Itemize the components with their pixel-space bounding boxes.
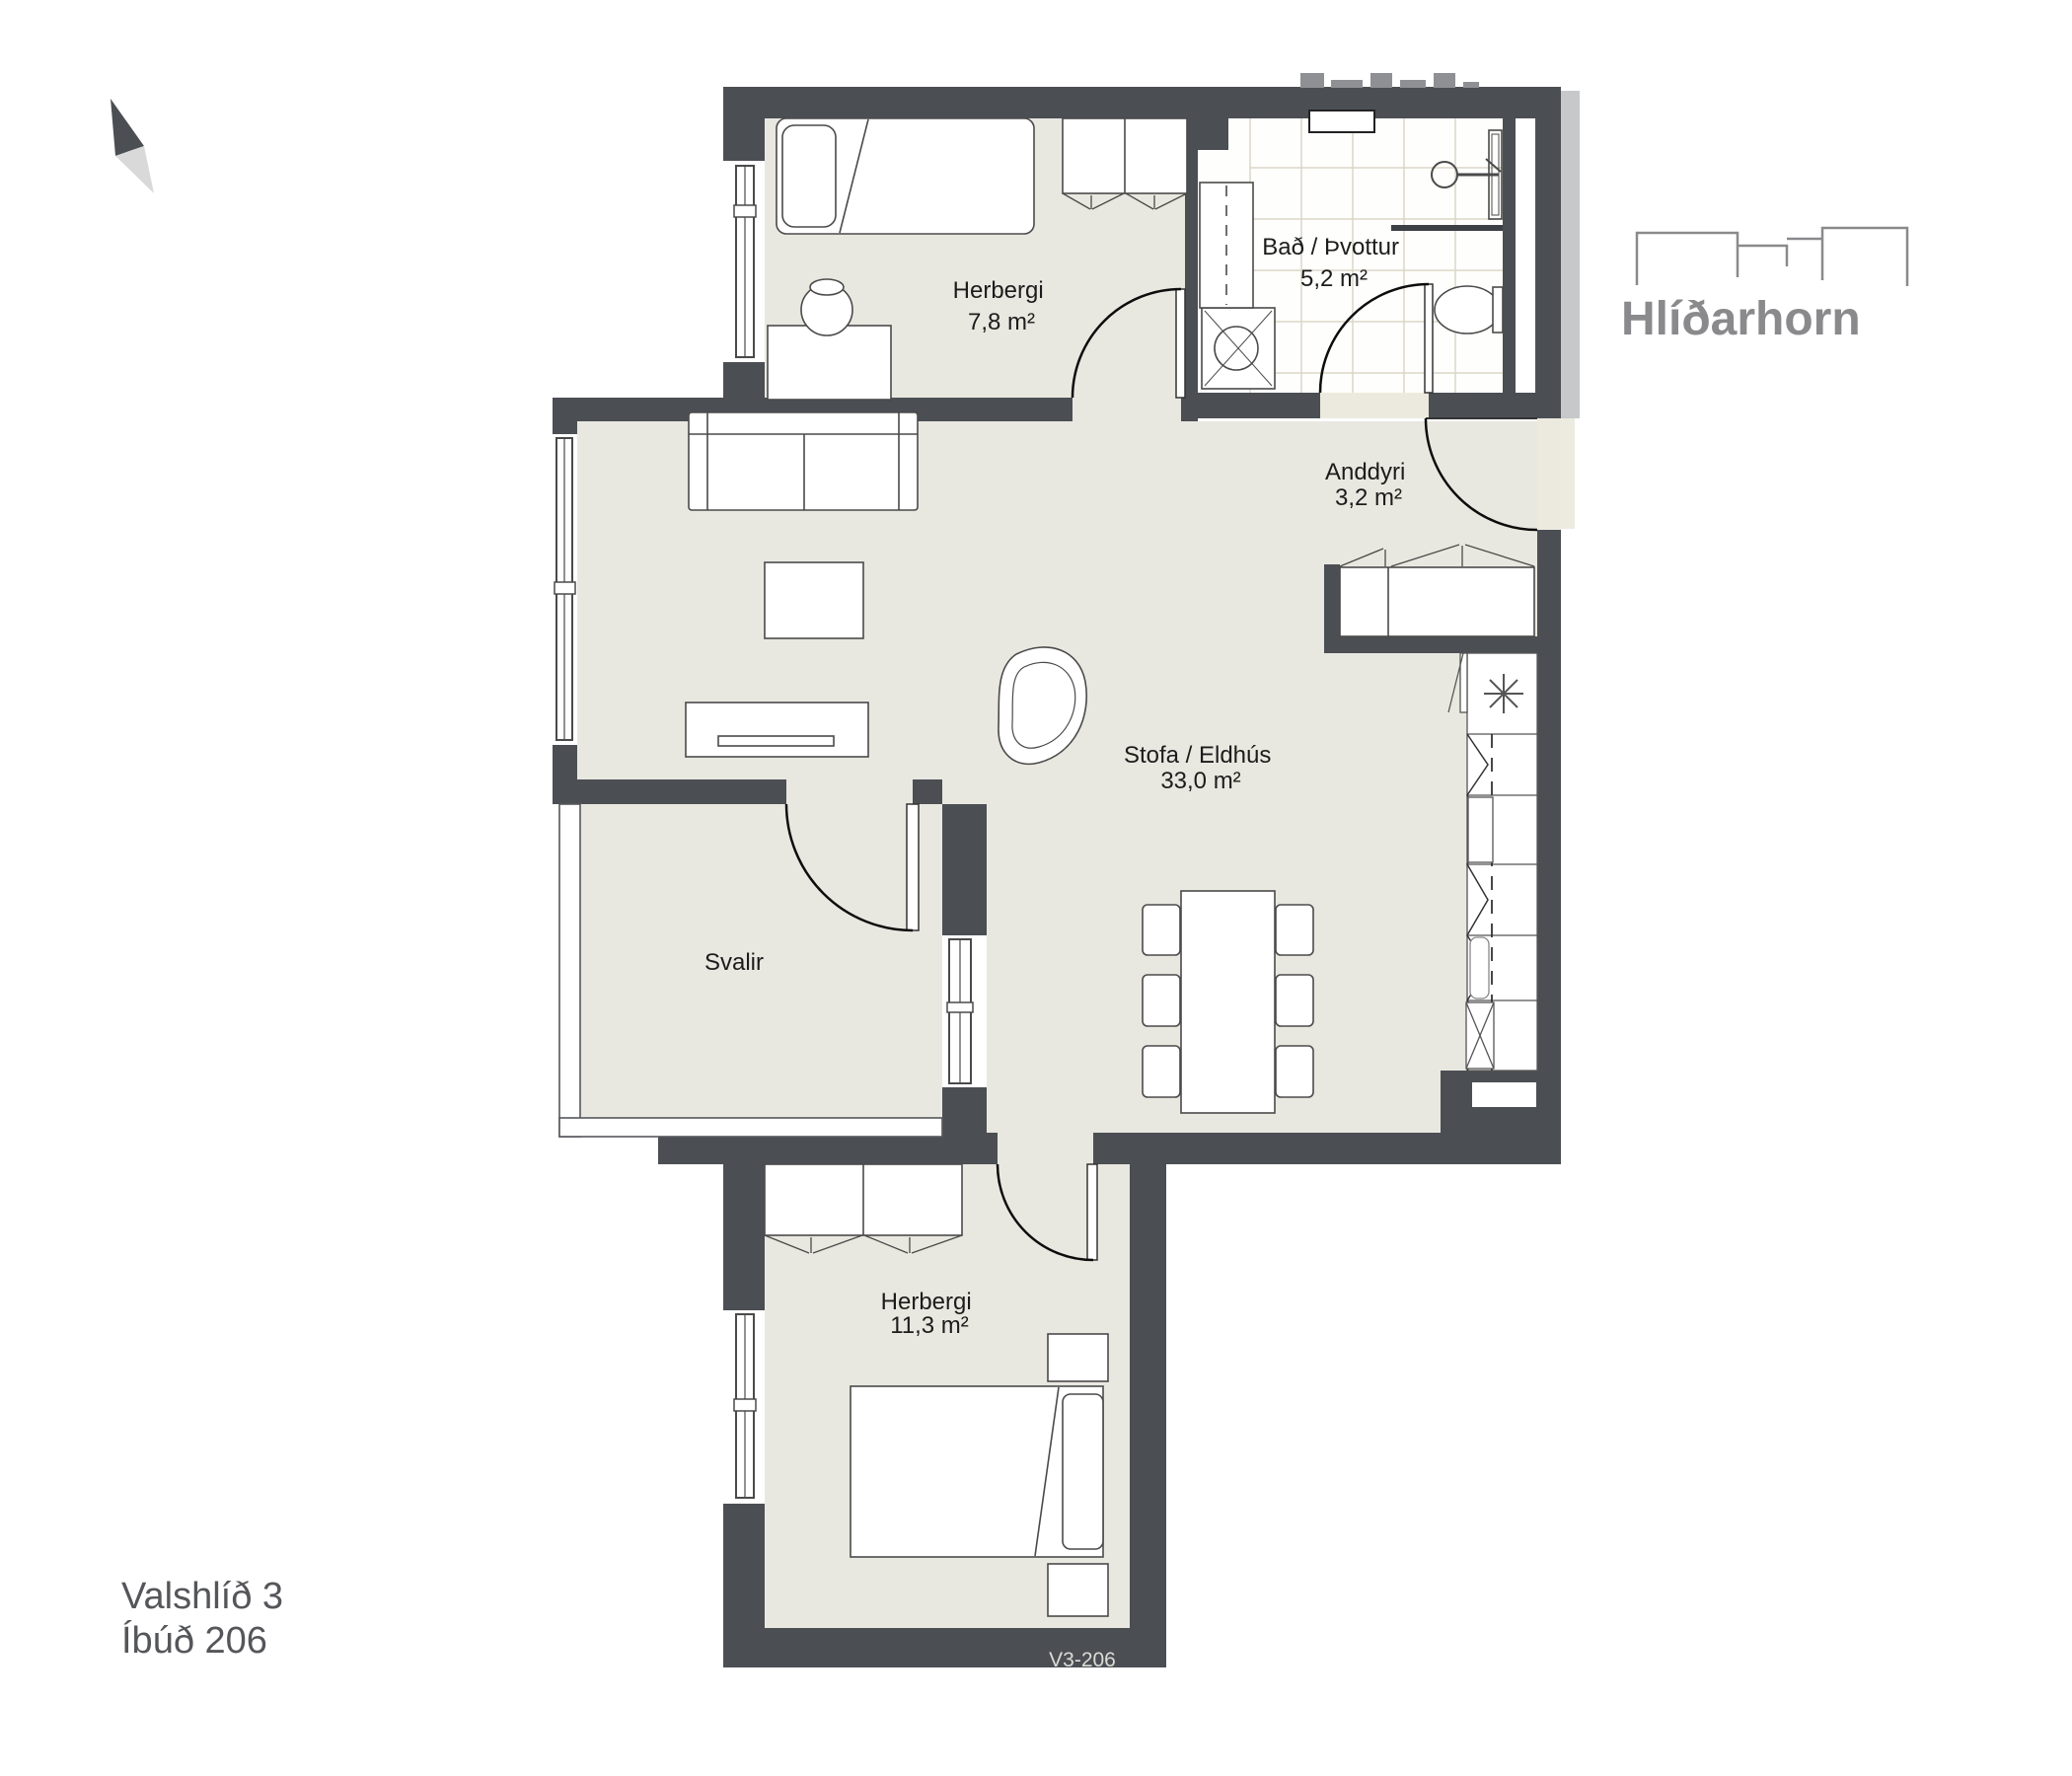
floor-plan-page: Herbergi 7,8 m² Bað / Þvottur 5,2 m² And… <box>0 0 2072 1776</box>
address-block: Valshlíð 3 Íbúð 206 <box>121 1575 283 1664</box>
toilet-tank <box>1493 287 1503 333</box>
logo-skyline-icon <box>1637 228 1907 286</box>
wall-top <box>723 87 1561 118</box>
sofa <box>689 412 918 510</box>
ghost-strip-right <box>1561 91 1580 418</box>
opening-entrance <box>1537 418 1561 530</box>
dining-chair <box>1276 975 1313 1026</box>
washing-machine <box>1202 308 1275 389</box>
stove-icon <box>1484 674 1523 713</box>
toilet <box>1435 286 1500 333</box>
wall-niche-block <box>1198 116 1228 150</box>
nightstand <box>1048 1334 1108 1381</box>
wall-inset-white <box>1472 1082 1536 1107</box>
shaft-white <box>1516 118 1535 393</box>
dining-chair <box>1143 975 1180 1026</box>
dining-table <box>1181 891 1275 1113</box>
opening-balcony <box>786 779 913 804</box>
address-street: Valshlíð 3 <box>121 1575 283 1619</box>
window-balcony-dining <box>942 935 987 1087</box>
address-apartment: Íbúð 206 <box>121 1619 283 1664</box>
plan-code: V3-206 <box>1049 1649 1116 1671</box>
wall-balcony-top-left <box>553 779 786 804</box>
fridge <box>1466 1002 1494 1069</box>
opening-bedroom1 <box>1073 398 1181 421</box>
opening-bedroom2 <box>998 1133 1093 1164</box>
logo-wordmark: Hlíðarhorn <box>1621 292 1861 346</box>
dining-chair <box>1276 1046 1313 1097</box>
utility-cabinet <box>1200 183 1253 308</box>
floor-plan-drawing: Herbergi 7,8 m² Bað / Þvottur 5,2 m² And… <box>0 0 2072 1776</box>
desk-chair-back <box>810 279 844 295</box>
window-bedroom-1 <box>723 161 765 362</box>
window-bedroom-2 <box>723 1310 765 1504</box>
label-svalir: Svalir <box>704 949 764 976</box>
wall-anddyri-band <box>1324 636 1561 653</box>
coffee-table <box>765 562 863 638</box>
wall-bedroom2-right <box>1130 1164 1166 1667</box>
wall-balcony-top-right <box>913 779 942 804</box>
ghost-threshold-right <box>1561 418 1575 529</box>
opening-bathroom <box>1320 393 1429 418</box>
wall-bath-bottom-left <box>1198 393 1320 418</box>
kitchen-sink <box>1470 937 1489 999</box>
nightstand <box>1048 1564 1108 1616</box>
label-anddyri: Anddyri 3,2 m² <box>1325 459 1412 511</box>
wall-bath-right-partition <box>1503 116 1516 393</box>
oven <box>1468 797 1493 862</box>
dining-chair <box>1276 905 1313 955</box>
window-living-room <box>553 434 577 745</box>
ghost-fragments-top <box>1300 73 1479 88</box>
dining-chair <box>1143 1046 1180 1097</box>
north-arrow-icon <box>111 99 154 193</box>
wall-stub <box>1181 398 1198 421</box>
desk <box>768 326 891 400</box>
bathroom-sink <box>1309 111 1374 132</box>
bed-pillow <box>1063 1394 1103 1549</box>
bed-pillow <box>782 125 836 227</box>
tv-stand <box>686 703 868 757</box>
label-herbergi-2: Herbergi 11,3 m² <box>881 1289 979 1339</box>
dining-set <box>1143 891 1313 1113</box>
double-bed <box>851 1386 1103 1557</box>
dining-chair <box>1143 905 1180 955</box>
wall-right-lower <box>1537 530 1561 1071</box>
wall-bath-bottom-right <box>1429 393 1561 418</box>
railing-left <box>559 804 580 1137</box>
wall-right-upper <box>1535 87 1561 418</box>
railing-bottom <box>559 1118 942 1137</box>
